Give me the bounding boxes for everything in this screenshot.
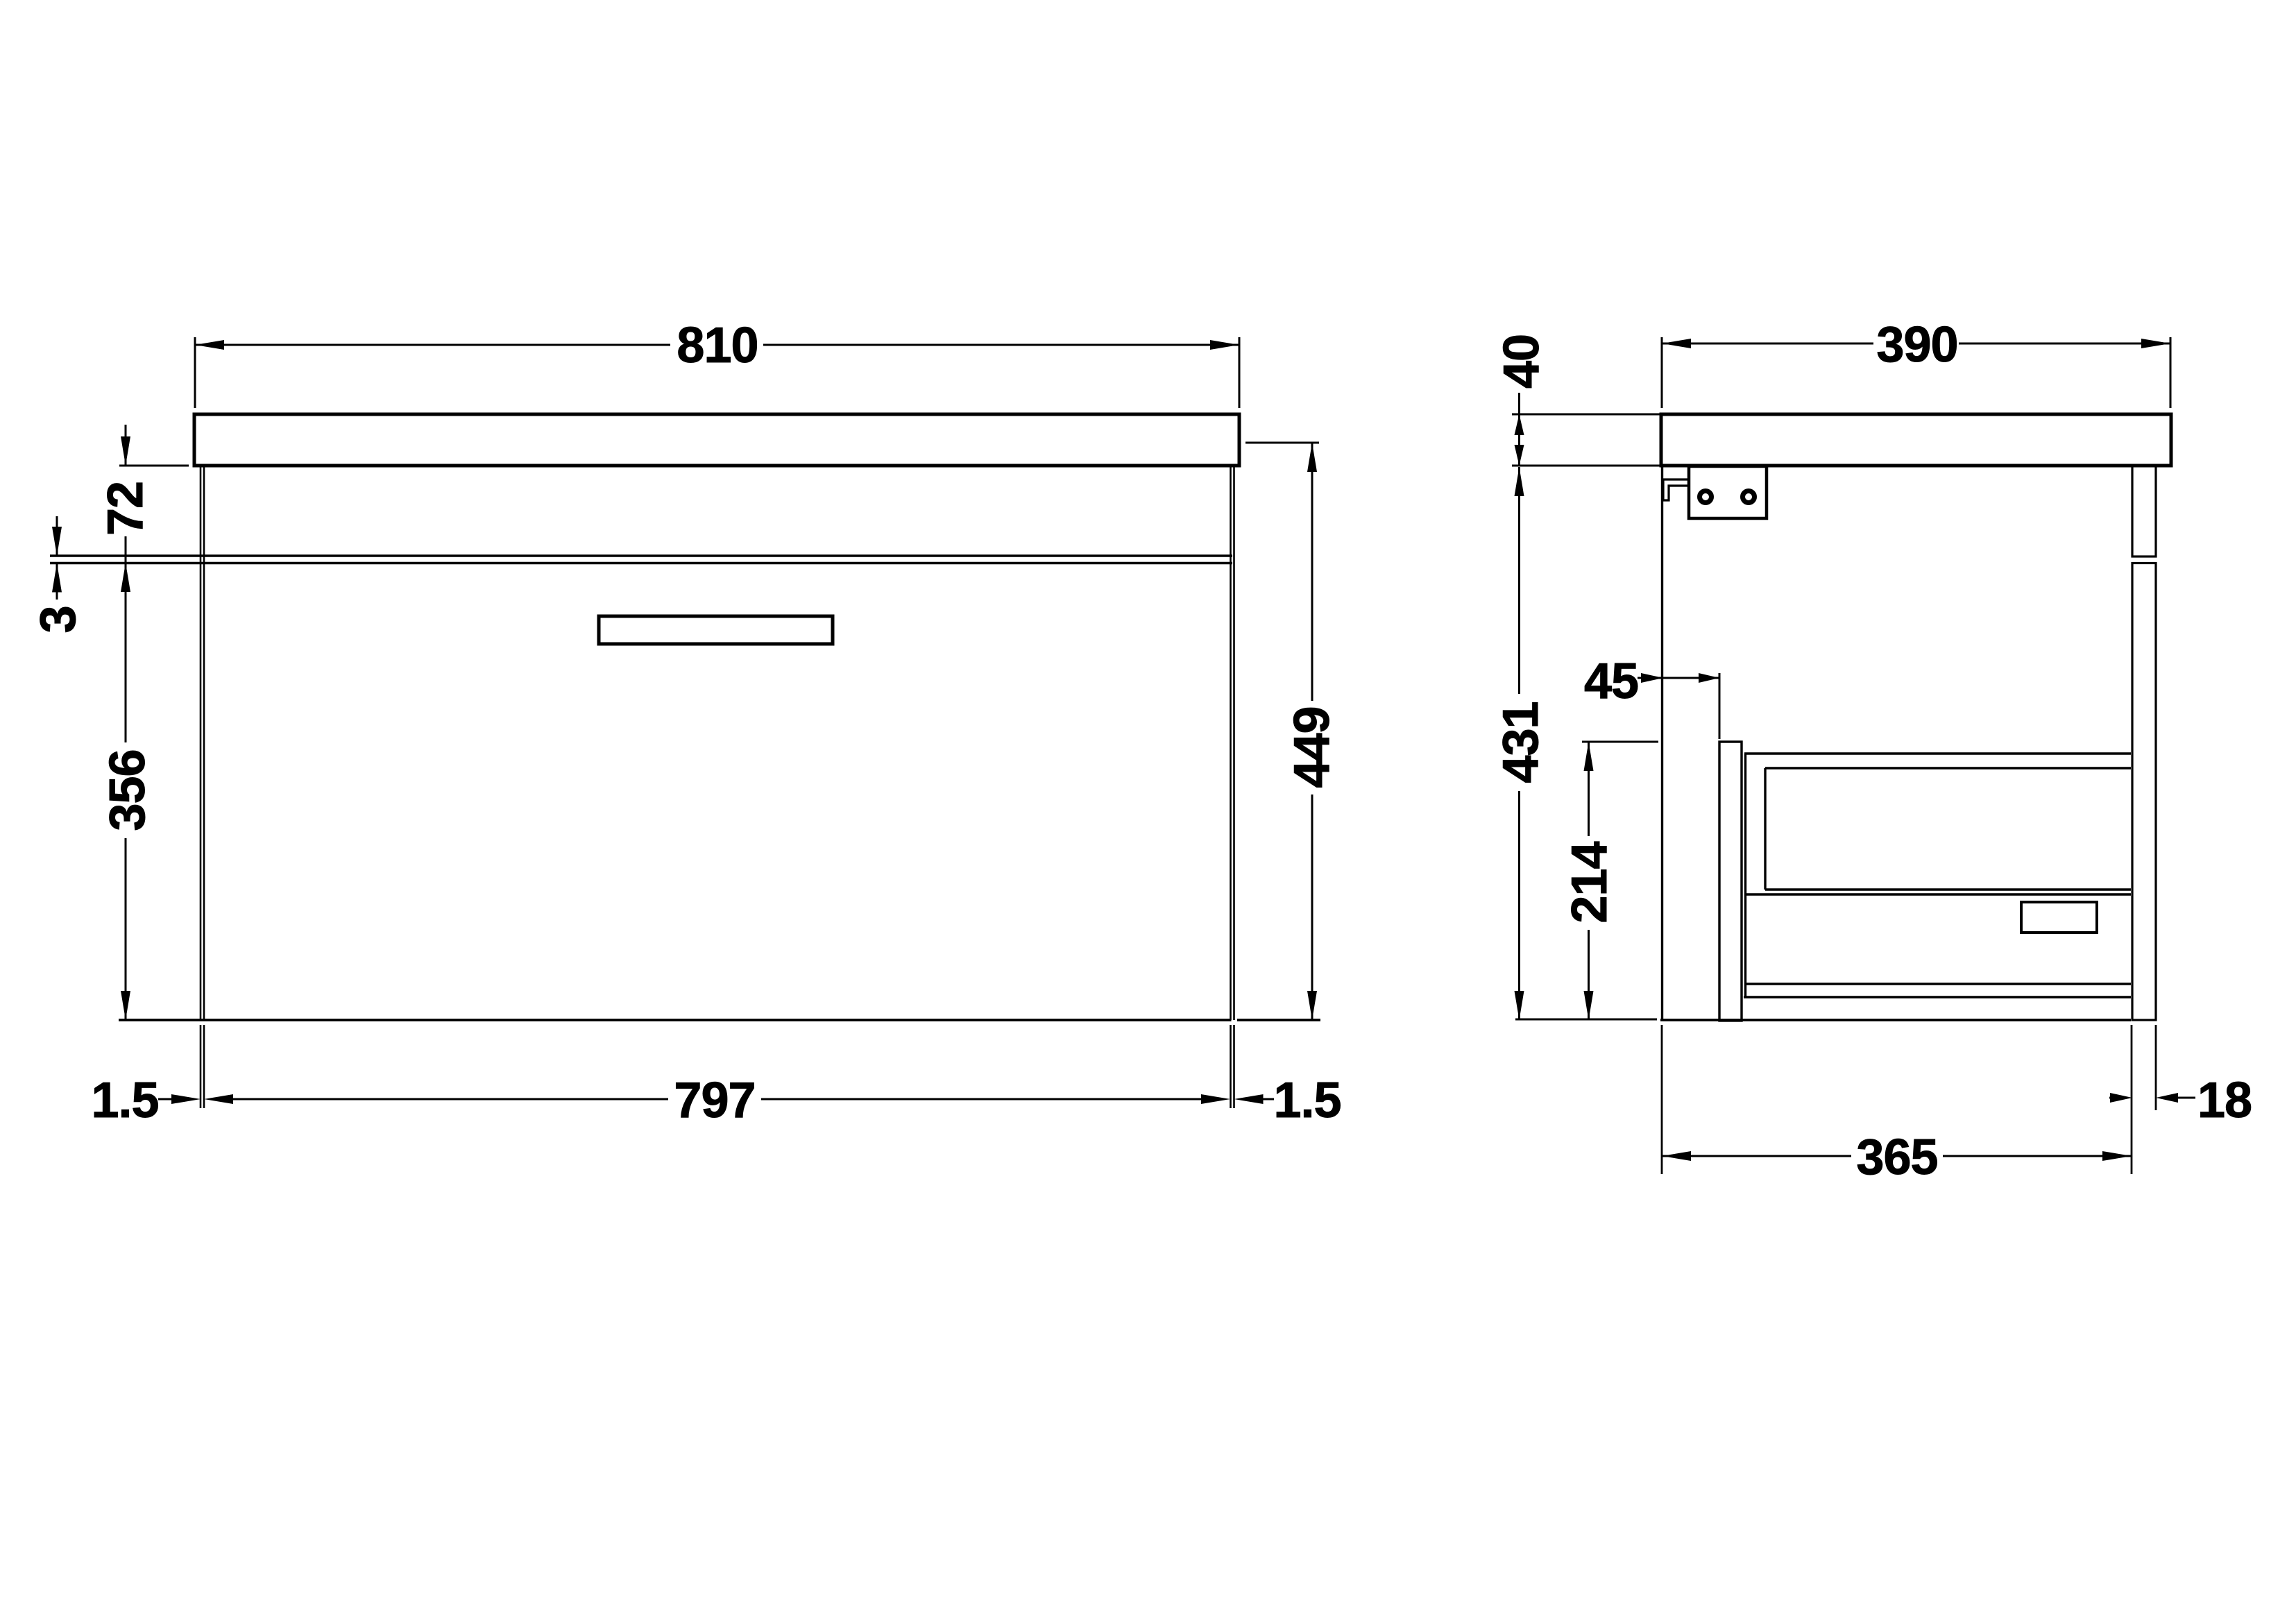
svg-text:40: 40 [1494, 334, 1549, 389]
svg-text:1.5: 1.5 [1273, 1073, 1341, 1128]
svg-text:214: 214 [1562, 841, 1617, 923]
svg-text:1.5: 1.5 [91, 1073, 158, 1128]
svg-text:797: 797 [674, 1073, 755, 1128]
svg-text:18: 18 [2197, 1073, 2252, 1128]
svg-text:356: 356 [100, 749, 155, 831]
svg-text:449: 449 [1284, 706, 1340, 788]
svg-text:431: 431 [1493, 702, 1549, 783]
svg-text:3: 3 [31, 606, 86, 633]
svg-text:72: 72 [98, 482, 153, 536]
svg-text:810: 810 [677, 318, 758, 373]
svg-text:45: 45 [1584, 654, 1638, 709]
svg-text:390: 390 [1876, 317, 1957, 373]
svg-text:365: 365 [1856, 1130, 1937, 1185]
